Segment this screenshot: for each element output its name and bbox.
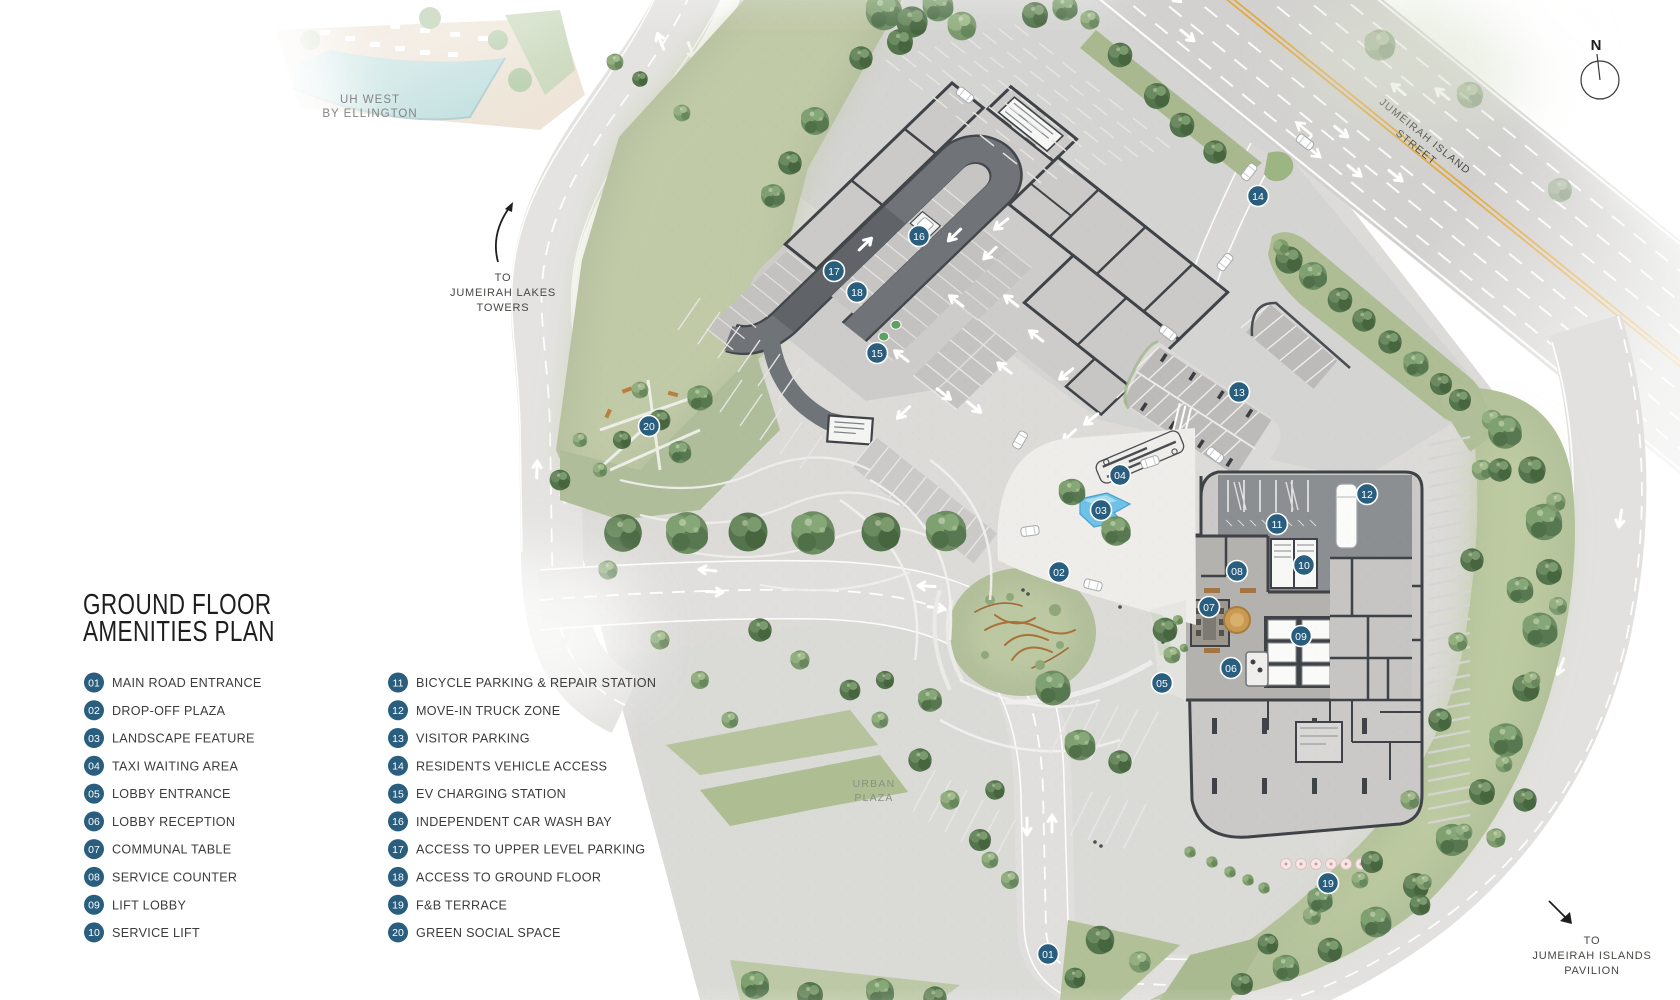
svg-text:02: 02 [88,705,100,717]
svg-text:13: 13 [392,733,404,745]
svg-text:PLAZA: PLAZA [854,792,893,804]
svg-text:15: 15 [392,788,404,800]
svg-text:13: 13 [1233,387,1245,399]
svg-text:06: 06 [88,816,100,828]
svg-text:17: 17 [828,266,840,278]
svg-text:N: N [1591,37,1602,54]
svg-text:11: 11 [393,677,404,689]
svg-text:05: 05 [88,788,100,800]
svg-text:TO: TO [1584,935,1601,947]
svg-text:18: 18 [851,287,863,299]
svg-text:JUMEIRAH LAKES: JUMEIRAH LAKES [450,287,556,299]
svg-text:MOVE-IN TRUCK ZONE: MOVE-IN TRUCK ZONE [416,704,560,718]
svg-text:15: 15 [871,348,883,360]
svg-text:MAIN ROAD ENTRANCE: MAIN ROAD ENTRANCE [112,676,262,690]
svg-text:19: 19 [1322,878,1334,890]
svg-text:TO: TO [495,272,512,284]
svg-text:18: 18 [392,872,404,884]
svg-text:03: 03 [1095,505,1107,517]
svg-text:GREEN SOCIAL SPACE: GREEN SOCIAL SPACE [416,926,561,940]
svg-text:INDEPENDENT CAR WASH BAY: INDEPENDENT CAR WASH BAY [416,815,612,829]
svg-text:COMMUNAL TABLE: COMMUNAL TABLE [112,843,231,857]
svg-text:20: 20 [643,421,655,433]
svg-text:10: 10 [88,927,100,939]
svg-text:08: 08 [1231,566,1243,578]
svg-text:DROP-OFF PLAZA: DROP-OFF PLAZA [112,704,226,718]
svg-text:01: 01 [88,677,100,689]
svg-text:06: 06 [1225,663,1237,675]
svg-text:19: 19 [392,900,404,912]
svg-text:TAXI WAITING AREA: TAXI WAITING AREA [112,759,238,773]
svg-text:F&B TERRACE: F&B TERRACE [416,898,507,912]
svg-text:07: 07 [1203,602,1215,614]
svg-text:04: 04 [88,761,100,773]
svg-text:PAVILION: PAVILION [1564,965,1620,977]
svg-text:03: 03 [88,733,100,745]
svg-text:LANDSCAPE FEATURE: LANDSCAPE FEATURE [112,732,255,746]
svg-text:URBAN: URBAN [853,778,896,790]
svg-text:JUMEIRAH ISLANDS: JUMEIRAH ISLANDS [1532,950,1651,962]
svg-text:01: 01 [1042,949,1054,961]
svg-text:10: 10 [1298,560,1310,572]
svg-text:LOBBY ENTRANCE: LOBBY ENTRANCE [112,787,231,801]
svg-text:EV CHARGING STATION: EV CHARGING STATION [416,787,566,801]
svg-text:LOBBY RECEPTION: LOBBY RECEPTION [112,815,235,829]
svg-text:ACCESS TO UPPER LEVEL PARKING: ACCESS TO UPPER LEVEL PARKING [416,843,645,857]
svg-text:04: 04 [1114,470,1126,482]
svg-text:17: 17 [392,844,404,856]
svg-text:AMENITIES PLAN: AMENITIES PLAN [83,617,275,648]
svg-text:20: 20 [392,927,404,939]
svg-text:12: 12 [392,705,404,717]
svg-text:07: 07 [88,844,100,856]
svg-text:LIFT LOBBY: LIFT LOBBY [112,898,186,912]
svg-text:14: 14 [1252,191,1264,203]
svg-text:02: 02 [1053,567,1065,579]
svg-text:SERVICE LIFT: SERVICE LIFT [112,926,200,940]
svg-text:UH WEST: UH WEST [340,94,400,106]
svg-text:ACCESS TO GROUND FLOOR: ACCESS TO GROUND FLOOR [416,871,601,885]
svg-text:14: 14 [392,761,404,773]
svg-text:16: 16 [392,816,404,828]
svg-text:11: 11 [1272,519,1283,531]
svg-text:09: 09 [88,900,100,912]
svg-text:09: 09 [1295,631,1307,643]
svg-text:16: 16 [913,231,925,243]
svg-text:12: 12 [1361,489,1373,501]
svg-text:BICYCLE PARKING & REPAIR STATI: BICYCLE PARKING & REPAIR STATION [416,676,656,690]
svg-text:BY ELLINGTON: BY ELLINGTON [322,108,417,120]
svg-text:SERVICE COUNTER: SERVICE COUNTER [112,871,237,885]
svg-text:RESIDENTS VEHICLE ACCESS: RESIDENTS VEHICLE ACCESS [416,759,607,773]
svg-text:08: 08 [88,872,100,884]
svg-text:TOWERS: TOWERS [477,302,530,314]
svg-text:VISITOR PARKING: VISITOR PARKING [416,732,530,746]
svg-text:05: 05 [1156,678,1168,690]
